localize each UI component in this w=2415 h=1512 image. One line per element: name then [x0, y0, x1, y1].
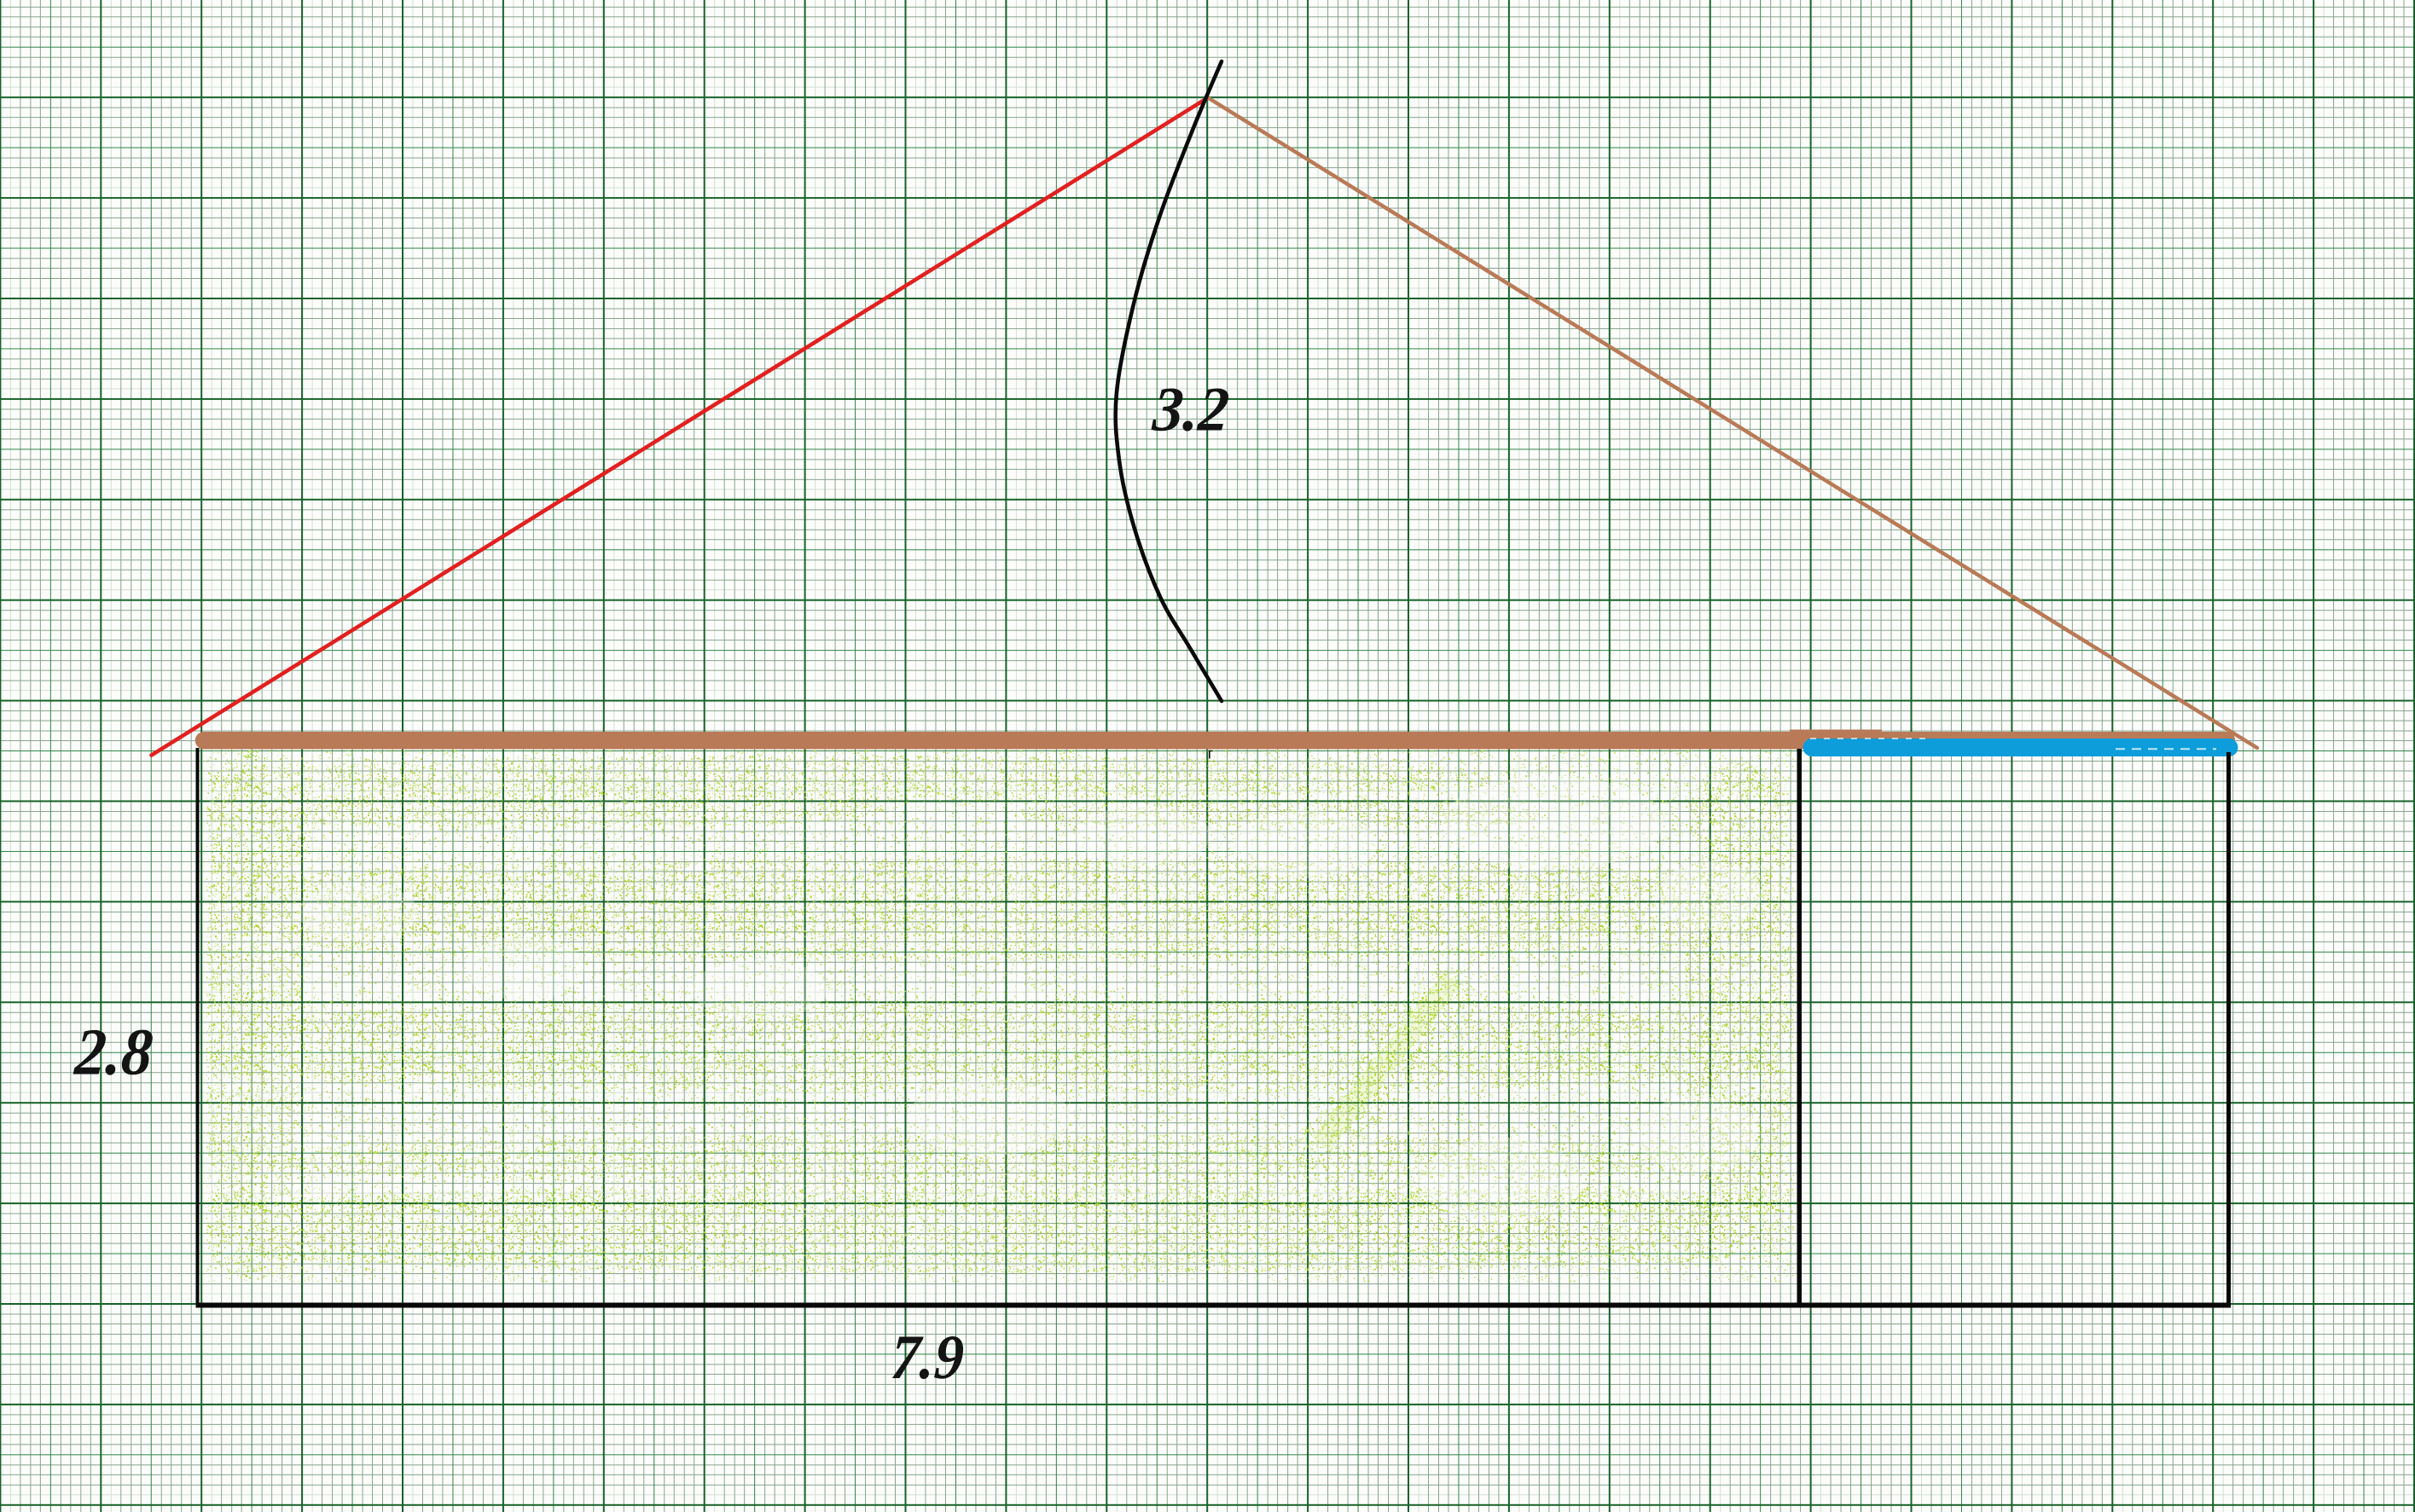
svg-text:7.9: 7.9 [889, 1323, 967, 1393]
svg-text:3.2: 3.2 [1150, 375, 1232, 445]
svg-text:2.8: 2.8 [72, 1015, 155, 1089]
